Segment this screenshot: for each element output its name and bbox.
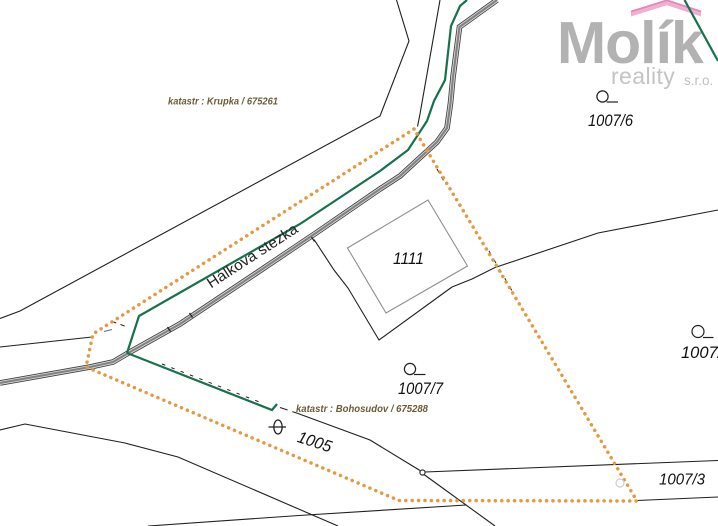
svg-text:1007/7: 1007/7 [398, 380, 444, 398]
svg-text:1007/3: 1007/3 [659, 472, 705, 489]
svg-text:1007/: 1007/ [681, 344, 718, 362]
svg-text:s.r.o.: s.r.o. [684, 73, 713, 88]
svg-text:reality: reality [611, 63, 675, 89]
svg-text:katastr : Krupka / 675261: katastr : Krupka / 675261 [168, 96, 278, 108]
svg-text:1005: 1005 [295, 428, 335, 456]
svg-text:1111: 1111 [393, 249, 424, 268]
svg-text:1007/6: 1007/6 [588, 112, 634, 130]
svg-text:katastr : Bohosudov / 675288: katastr : Bohosudov / 675288 [296, 403, 428, 415]
